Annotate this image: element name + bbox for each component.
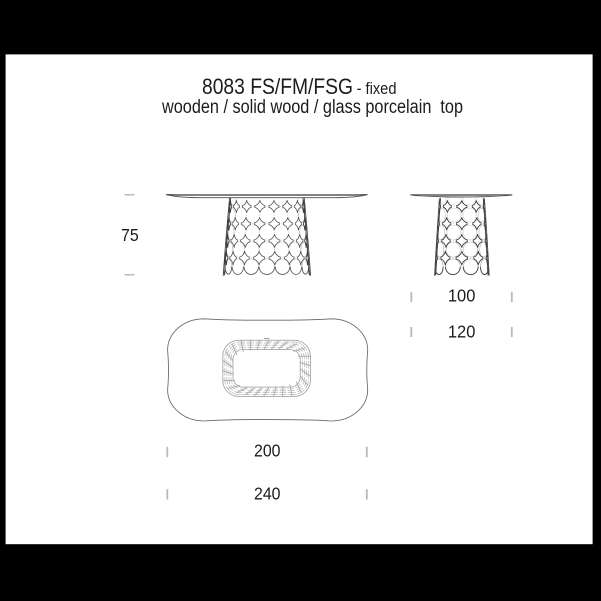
svg-text:75: 75	[121, 225, 139, 245]
svg-text:wooden / solid wood / glass po: wooden / solid wood / glass porcelain to…	[161, 97, 463, 118]
svg-text:100: 100	[448, 286, 476, 306]
svg-text:- fixed: - fixed	[353, 79, 397, 98]
svg-text:240: 240	[254, 483, 281, 503]
svg-text:8083 FS/FM/FSG: 8083 FS/FM/FSG	[202, 74, 353, 99]
svg-text:200: 200	[254, 441, 281, 461]
svg-text:120: 120	[448, 322, 476, 342]
